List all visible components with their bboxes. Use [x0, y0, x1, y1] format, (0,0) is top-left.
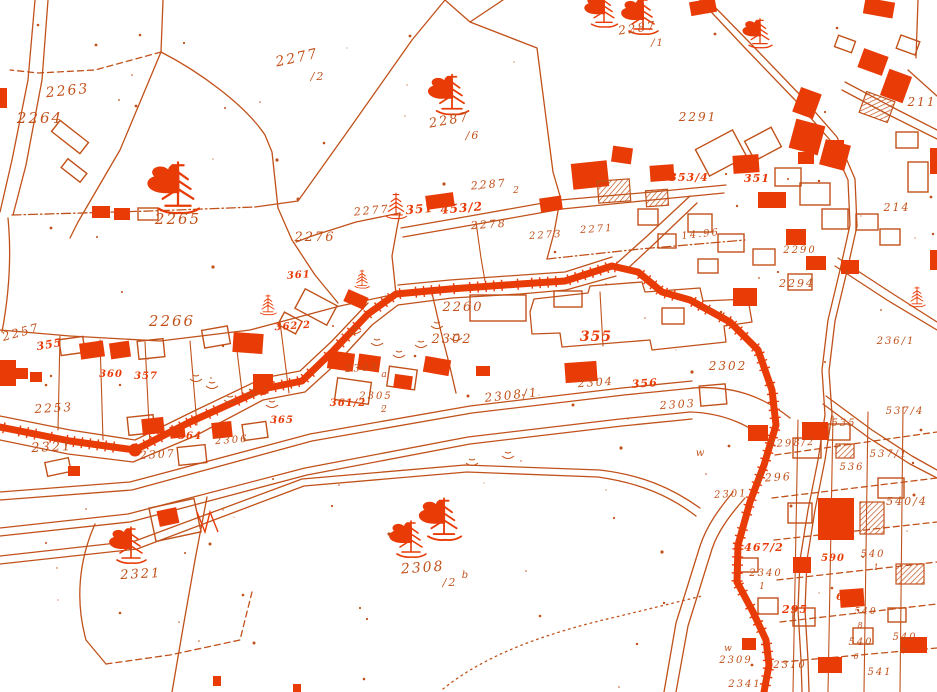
parcel-label: 2308: [399, 559, 445, 578]
building: [30, 372, 42, 382]
swamp-mark-icon: [266, 401, 278, 408]
parcel-label: 2341: [727, 679, 761, 690]
building: [202, 326, 231, 348]
building: [841, 260, 859, 274]
highlighted-route: [0, 262, 781, 692]
parcel-label: 2296: [755, 470, 793, 485]
parcel-label: 540: [848, 637, 873, 648]
parcel-label: 536: [839, 462, 864, 473]
parcel-label: 365: [270, 415, 294, 426]
building: [92, 206, 110, 218]
parcel-label: /2: [442, 576, 458, 589]
cadastral-map: 226322642277/222652287/62287/12291228724…: [0, 0, 937, 692]
parcel-number-labels: 226322642277/222652287/62287/12291228724…: [0, 18, 936, 690]
building: [798, 152, 814, 164]
parcel-label: 236/1: [876, 336, 916, 347]
parcel-label: 7: [901, 647, 908, 656]
parcel-label: 2309: [718, 655, 752, 666]
building: [826, 140, 844, 154]
parcel-label: 362/2: [274, 320, 311, 334]
parcel-label: 541: [867, 667, 892, 678]
parcel-label: 364: [178, 431, 202, 442]
building: [822, 209, 848, 229]
building: [908, 162, 928, 192]
parcel-label: 1: [759, 582, 767, 592]
building: [793, 557, 811, 573]
building: [930, 148, 937, 174]
building: [818, 657, 842, 673]
parcel-label: 8: [857, 621, 864, 630]
building: [896, 564, 924, 584]
parcel-label: 1: [873, 563, 880, 572]
parcel-label: 2340: [748, 568, 782, 579]
building: [476, 366, 490, 376]
building: [753, 249, 775, 265]
building: [930, 250, 937, 270]
parcel-label: 2271: [579, 223, 614, 236]
parcel-label: 2290: [782, 245, 816, 256]
tree-icon: [909, 287, 925, 307]
parcel-label: 2298/2: [767, 437, 816, 451]
building: [880, 229, 900, 245]
building: [896, 132, 918, 148]
swamp-mark-icon: [466, 459, 478, 466]
swamp-mark-icon: [502, 452, 514, 459]
parcel-label: 2310: [772, 660, 806, 671]
parcel-label: 2321: [30, 439, 73, 456]
tree-icon: [419, 500, 445, 524]
parcel-label: 355: [35, 336, 63, 353]
parcel-label: b: [462, 570, 470, 581]
tree-icon: [109, 528, 132, 549]
swamp-mark-icon: [206, 382, 218, 389]
building: [393, 374, 413, 390]
tree-icon: [260, 295, 276, 315]
parcel-label: 361: [287, 269, 312, 282]
parcel-label: 2260: [441, 300, 483, 315]
building: [45, 458, 71, 477]
building: [68, 466, 80, 476]
building: [61, 159, 87, 182]
building: [888, 608, 906, 622]
tree-icon: [147, 164, 179, 193]
swamp-mark-icon: [431, 322, 443, 329]
building: [554, 291, 582, 307]
building: [732, 154, 759, 174]
building: [836, 444, 854, 458]
parcel-label: 2253: [33, 400, 73, 416]
building: [213, 676, 221, 686]
building: [157, 507, 180, 527]
parcel-label: 2264: [16, 109, 63, 127]
tree-icon: [743, 20, 761, 36]
parcel-label: 351: [405, 201, 434, 217]
parcel-label: 2306: [214, 434, 249, 447]
parcel-label: 2301: [713, 488, 748, 501]
parcel-label: 211: [907, 95, 937, 109]
building: [141, 417, 165, 435]
parcel-label: 6: [853, 652, 860, 661]
parcel-label: 361/2: [330, 398, 366, 409]
tree-icon: [428, 76, 453, 99]
building: [177, 445, 207, 466]
parcel-label: 535: [831, 418, 856, 429]
building: [806, 256, 826, 270]
building: [109, 341, 131, 360]
building: [0, 88, 7, 108]
building: [638, 209, 658, 225]
parcel-label: 2303: [658, 397, 696, 413]
parcel-label: 2265: [154, 210, 201, 228]
parcel-label: 2287: [427, 110, 471, 132]
parcel-label: 590: [821, 553, 845, 564]
parcel-label: 540/4: [886, 495, 928, 508]
parcel-label: 2294: [778, 277, 815, 290]
building: [662, 308, 684, 324]
parcel-label: w: [696, 448, 707, 459]
parcel-label: 357: [134, 371, 158, 382]
building: [775, 168, 801, 186]
parcel-label: 2307: [139, 447, 177, 462]
building: [114, 208, 130, 220]
building: [597, 179, 630, 203]
parcel-label: 540: [854, 607, 877, 617]
building: [293, 684, 301, 692]
building: [0, 360, 16, 386]
parcel-label: 2287: [469, 176, 507, 192]
building: [733, 288, 757, 306]
route-hatch-ticks: [3, 262, 781, 686]
building: [834, 35, 855, 52]
building: [718, 234, 744, 252]
parcel-label: 14.96: [681, 227, 721, 242]
tree-icon: [355, 270, 370, 288]
building: [857, 48, 888, 76]
parcel-label: /2: [310, 70, 326, 83]
parcel-label: a: [381, 370, 388, 380]
parcel-label: 2278: [469, 217, 507, 233]
parcel-label: 351: [744, 172, 770, 185]
building: [856, 214, 878, 230]
parcel-label: 355: [580, 329, 612, 345]
swamp-mark-icon: [371, 339, 383, 346]
building: [611, 146, 633, 165]
tree-icon: [621, 0, 644, 20]
parcel-label: 2303: [344, 362, 379, 375]
building: [789, 119, 826, 156]
parcel-label: 2321: [119, 566, 162, 583]
building: [742, 638, 756, 650]
parcel-label: 2308/1: [483, 385, 539, 405]
building: [698, 259, 718, 273]
building: [800, 183, 830, 205]
building: [232, 332, 263, 354]
building: [786, 229, 806, 245]
building: [137, 339, 165, 360]
parcel-label: 540: [860, 549, 885, 560]
parcel-label: 2263: [44, 81, 90, 102]
parcel-label: 467/2: [744, 541, 784, 554]
parcel-label: w: [724, 644, 734, 654]
parcel-label: 2266: [148, 312, 195, 330]
route-junction-dot: [257, 383, 269, 395]
parcel-label: 2: [380, 405, 389, 415]
building: [79, 340, 105, 359]
parcel-label: 356: [631, 376, 658, 391]
swamp-mark-icon: [393, 351, 405, 358]
tree-icon: [389, 522, 412, 543]
parcel-label: 2276: [293, 230, 335, 245]
swamp-mark-icon: [190, 375, 202, 382]
building: [758, 598, 778, 614]
parcel-label: 360: [99, 369, 123, 380]
parcel-label: 2273: [528, 229, 563, 242]
building-footprints-hatched: [597, 92, 924, 584]
parcel-label: 2302: [430, 332, 472, 347]
swamp-mark-icon: [415, 341, 427, 348]
building: [423, 356, 451, 376]
parcel-label: 2291: [678, 110, 718, 124]
parcel-label: 2287: [616, 18, 657, 37]
building: [863, 0, 895, 18]
map-canvas: 226322642277/222652287/62287/12291228724…: [0, 0, 937, 692]
parcel-label: /6: [465, 129, 481, 142]
building: [645, 189, 668, 206]
parcel-label: 2302: [708, 359, 748, 373]
parcel-label: 353/4: [669, 171, 709, 184]
building: [758, 192, 786, 208]
parcel-label: 642: [836, 592, 860, 603]
building: [860, 502, 884, 534]
building: [748, 425, 768, 441]
parcel-label: 2304: [576, 375, 614, 391]
parcel-label: 2277: [273, 46, 320, 71]
parcel-label: 295: [781, 603, 808, 616]
parcel-label: 537/1: [870, 449, 909, 460]
parcel-label: 540: [892, 632, 917, 643]
parcel-label: 537/4: [886, 406, 925, 417]
building: [15, 368, 28, 379]
building: [818, 498, 854, 540]
parcel-label: 214: [883, 201, 911, 214]
parcel-label: /1: [650, 38, 665, 49]
parcel-label: 2: [512, 186, 521, 196]
